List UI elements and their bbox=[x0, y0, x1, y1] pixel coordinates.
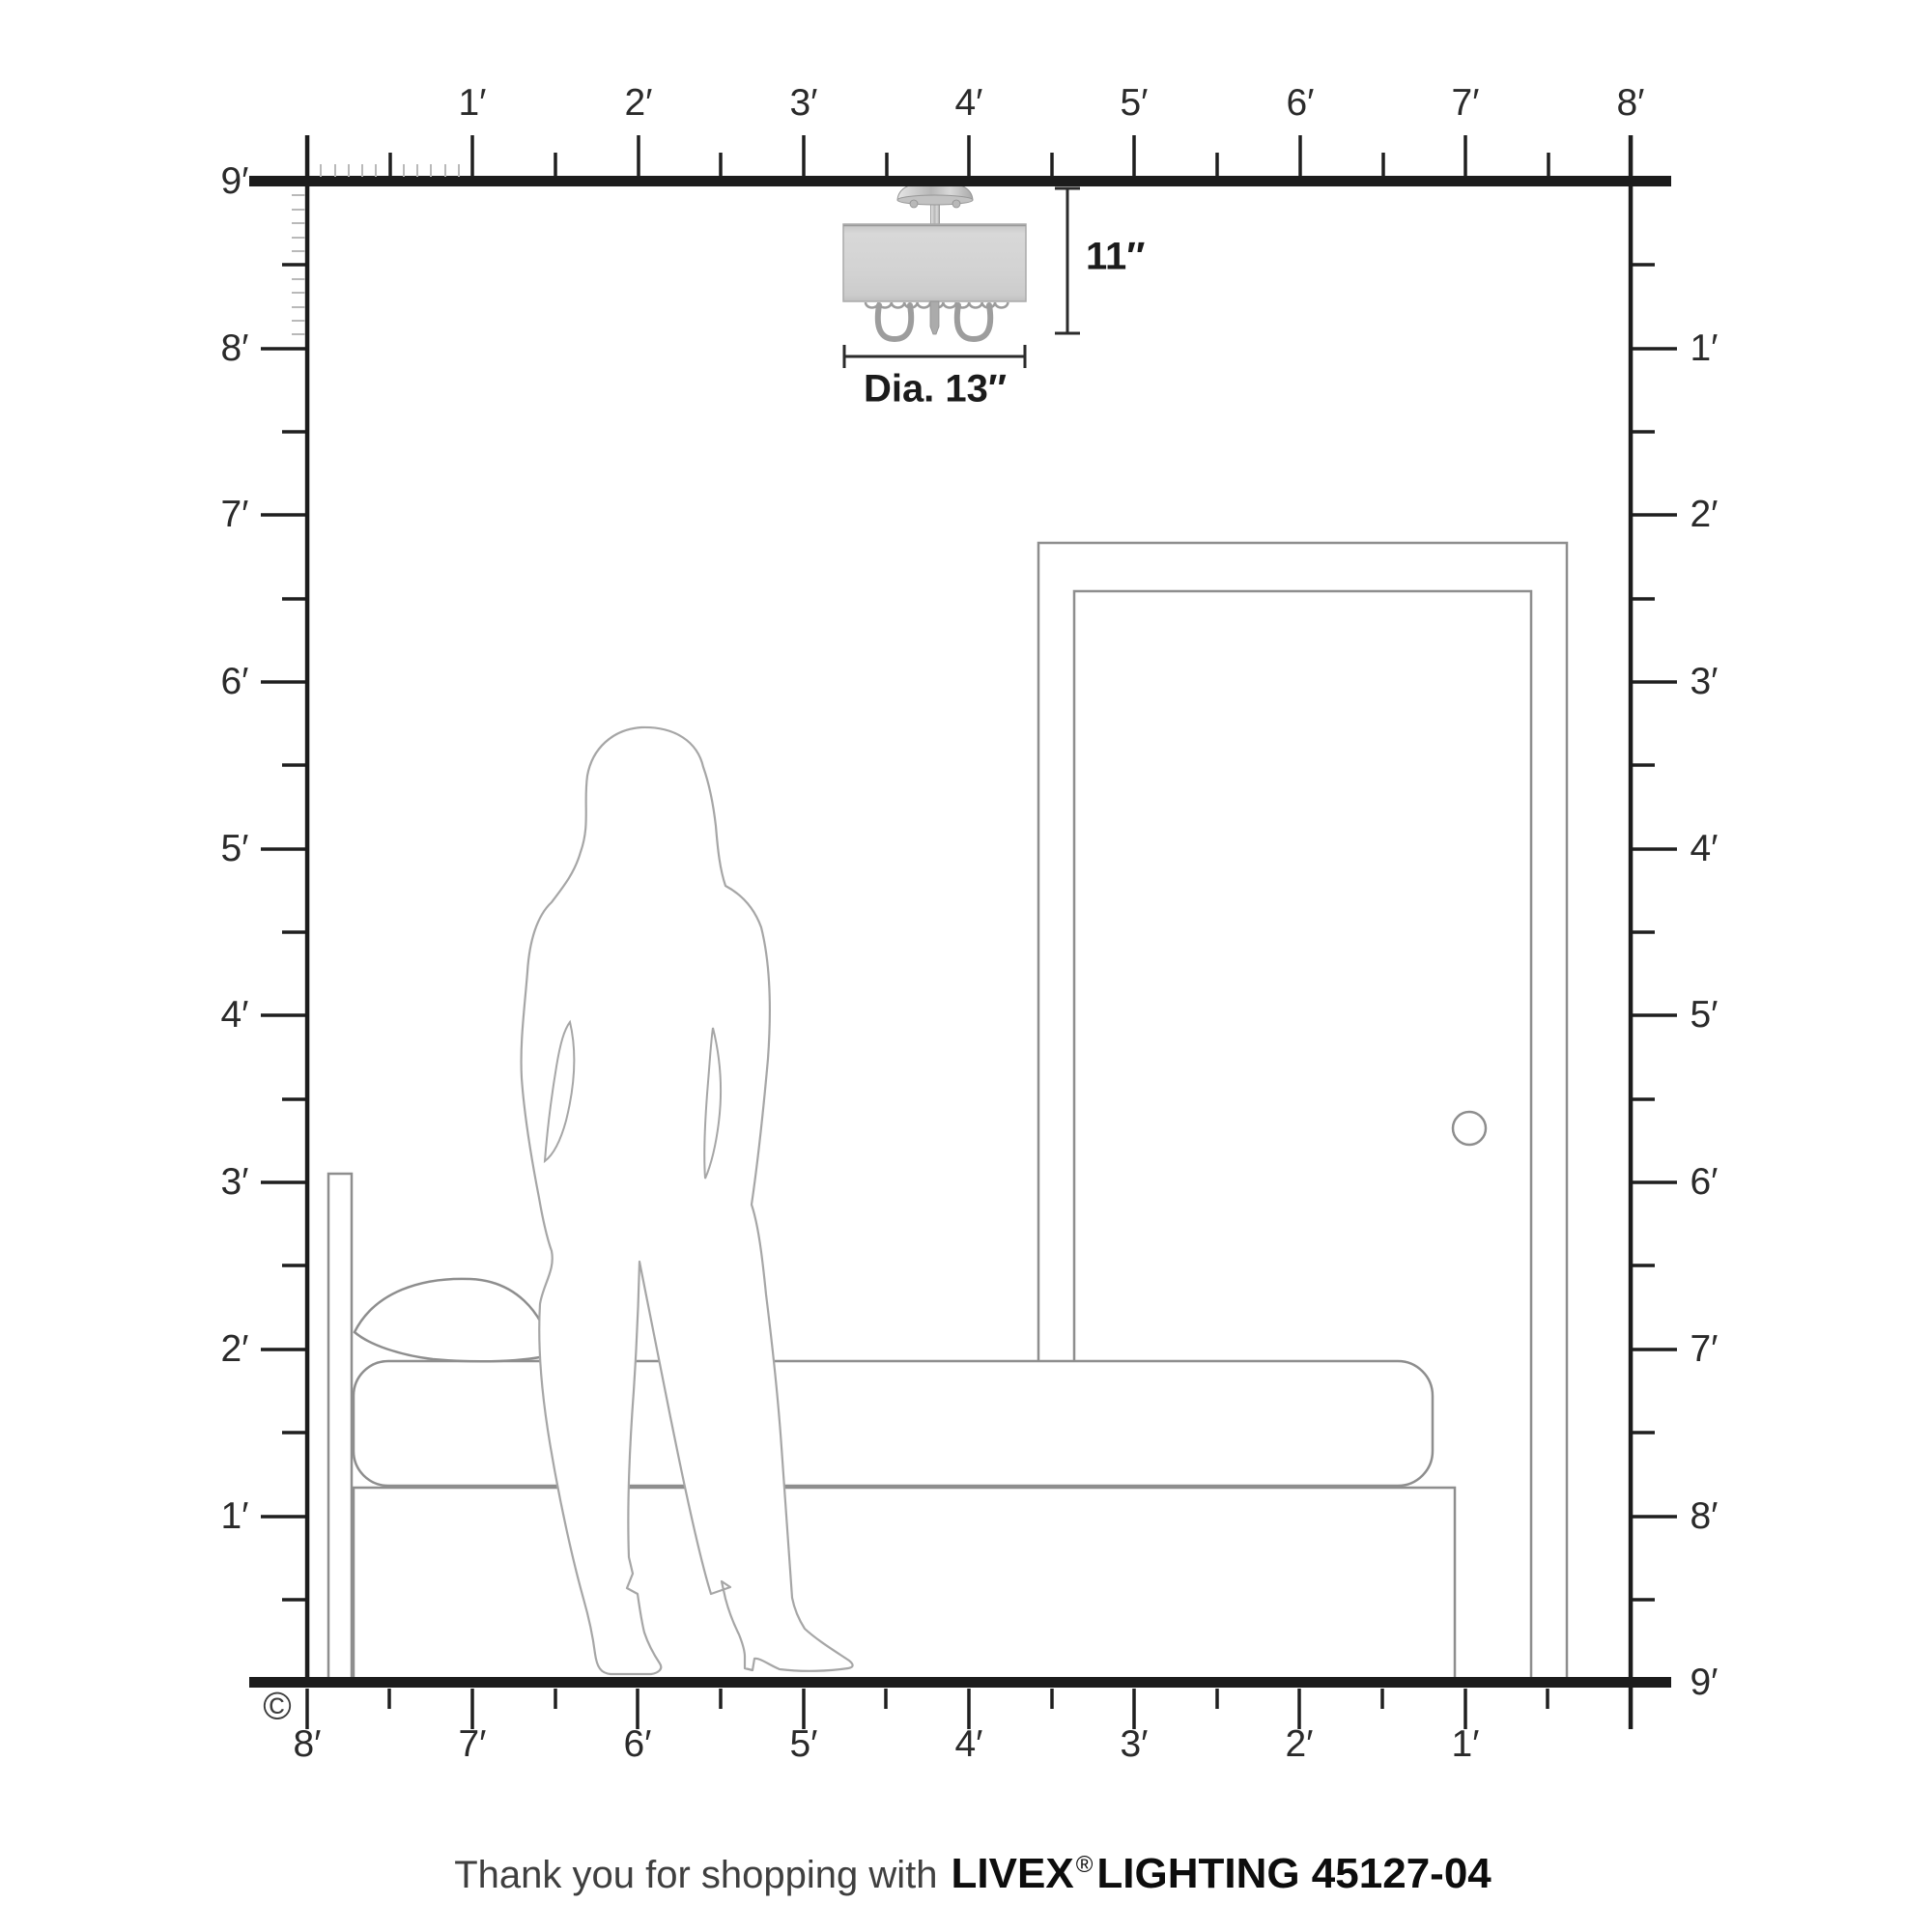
canopy-knob-right bbox=[952, 200, 960, 208]
top-ruler-label: 1′ bbox=[458, 82, 486, 125]
bottom-ruler-label: 7′ bbox=[458, 1723, 486, 1766]
bottom-ruler-label: 6′ bbox=[623, 1723, 651, 1766]
left-ruler-label: 3′ bbox=[220, 1161, 248, 1204]
footer-message: Thank you for shopping with bbox=[454, 1854, 937, 1897]
drum-shade bbox=[843, 224, 1026, 301]
floor-line bbox=[249, 1677, 1671, 1688]
left-ruler-label: 6′ bbox=[220, 661, 248, 703]
left-ruler-label: 8′ bbox=[220, 327, 248, 370]
right-ruler-label: 4′ bbox=[1690, 828, 1718, 870]
headboard-post bbox=[328, 1174, 352, 1683]
bottom-ruler-label: 8′ bbox=[293, 1723, 321, 1766]
top-ruler-label: 2′ bbox=[624, 82, 652, 125]
right-wall bbox=[1629, 135, 1634, 1729]
top-ruler-label: 8′ bbox=[1616, 82, 1644, 125]
fixture-canopy-rim bbox=[897, 195, 973, 205]
left-ruler-label: 1′ bbox=[220, 1495, 248, 1538]
top-ruler-label: 4′ bbox=[954, 82, 982, 125]
right-ruler-label: 9′ bbox=[1690, 1662, 1718, 1704]
top-ruler-label: 6′ bbox=[1286, 82, 1314, 125]
right-ruler-label: 6′ bbox=[1690, 1161, 1718, 1204]
door-knob bbox=[1453, 1112, 1486, 1145]
bottom-ruler-label: 1′ bbox=[1451, 1723, 1479, 1766]
right-ruler-label: 8′ bbox=[1690, 1495, 1718, 1538]
top-ruler-label: 3′ bbox=[789, 82, 817, 125]
footer-brand-name: LIVEX bbox=[952, 1850, 1074, 1898]
fixture-height-dimension-label: 11″ bbox=[1086, 236, 1145, 279]
fixture-diameter-dimension-label: Dia. 13″ bbox=[864, 368, 1007, 412]
left-ruler-label: 5′ bbox=[220, 828, 248, 870]
mattress bbox=[354, 1361, 1433, 1486]
left-ruler-label: 2′ bbox=[220, 1328, 248, 1371]
top-ruler-label: 5′ bbox=[1120, 82, 1148, 125]
fixture-arm-left bbox=[878, 305, 911, 339]
canopy-knob-left bbox=[910, 200, 918, 208]
right-ruler-label: 1′ bbox=[1690, 327, 1718, 370]
registered-trademark-icon: ® bbox=[1076, 1852, 1094, 1879]
bottom-ruler-label: 3′ bbox=[1120, 1723, 1148, 1766]
footer: Thank you for shopping with LIVEX ® LIGH… bbox=[454, 1850, 1492, 1898]
right-ruler-label: 5′ bbox=[1690, 994, 1718, 1037]
right-ruler-label: 3′ bbox=[1690, 661, 1718, 703]
footer-product-number: LIGHTING 45127-04 bbox=[1096, 1850, 1491, 1898]
left-ruler-label: 7′ bbox=[220, 494, 248, 536]
fixture-arm-right bbox=[957, 305, 990, 339]
left-wall bbox=[305, 135, 310, 1683]
right-ruler-label: 7′ bbox=[1690, 1328, 1718, 1371]
bottom-ruler-label: 5′ bbox=[789, 1723, 817, 1766]
bottom-ruler-label: 2′ bbox=[1285, 1723, 1313, 1766]
right-ruler-label: 2′ bbox=[1690, 494, 1718, 536]
ceiling-line bbox=[249, 176, 1671, 186]
bed-platform bbox=[354, 1488, 1455, 1683]
left-ruler-label: 9′ bbox=[220, 160, 248, 203]
top-ruler-label: 7′ bbox=[1451, 82, 1479, 125]
ceiling-fixture bbox=[843, 182, 1026, 339]
copyright-symbol: © bbox=[263, 1686, 291, 1729]
pillow bbox=[355, 1279, 553, 1361]
inch-ticks bbox=[292, 164, 459, 334]
bottom-ruler-label: 4′ bbox=[954, 1723, 982, 1766]
fixture-finial bbox=[930, 301, 939, 334]
left-ruler-label: 4′ bbox=[220, 994, 248, 1037]
room-diagram bbox=[0, 0, 1932, 1932]
